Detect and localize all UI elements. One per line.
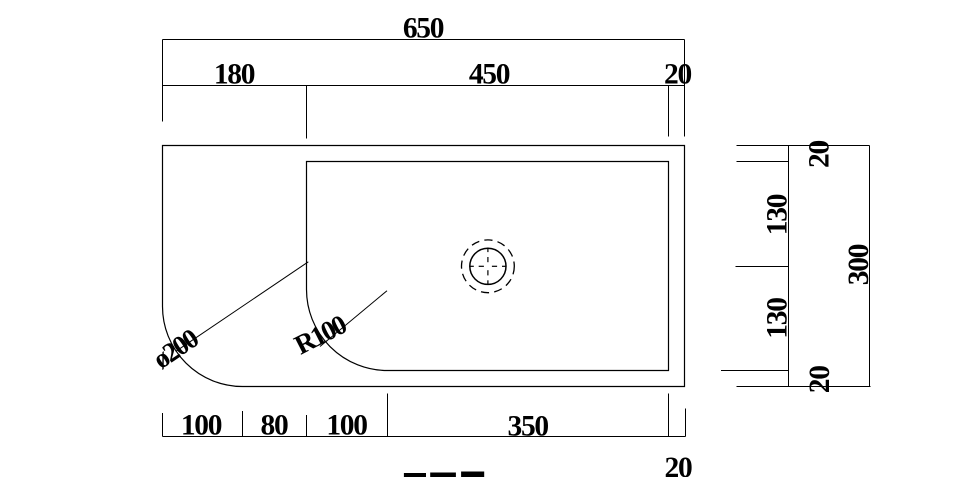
svg-text:350: 350 [508,411,549,443]
svg-text:100: 100 [326,410,367,442]
svg-text:450: 450 [469,59,510,91]
svg-text:130: 130 [761,194,793,235]
svg-text:100: 100 [181,410,222,442]
svg-text:650: 650 [403,13,444,45]
svg-text:20: 20 [664,59,691,91]
svg-text:180: 180 [214,59,255,91]
svg-text:300: 300 [843,244,875,285]
svg-text:20: 20 [803,141,835,168]
svg-text:130: 130 [761,298,793,339]
svg-text:80: 80 [261,410,288,442]
svg-text:20: 20 [665,452,692,477]
svg-text:20: 20 [804,366,836,393]
